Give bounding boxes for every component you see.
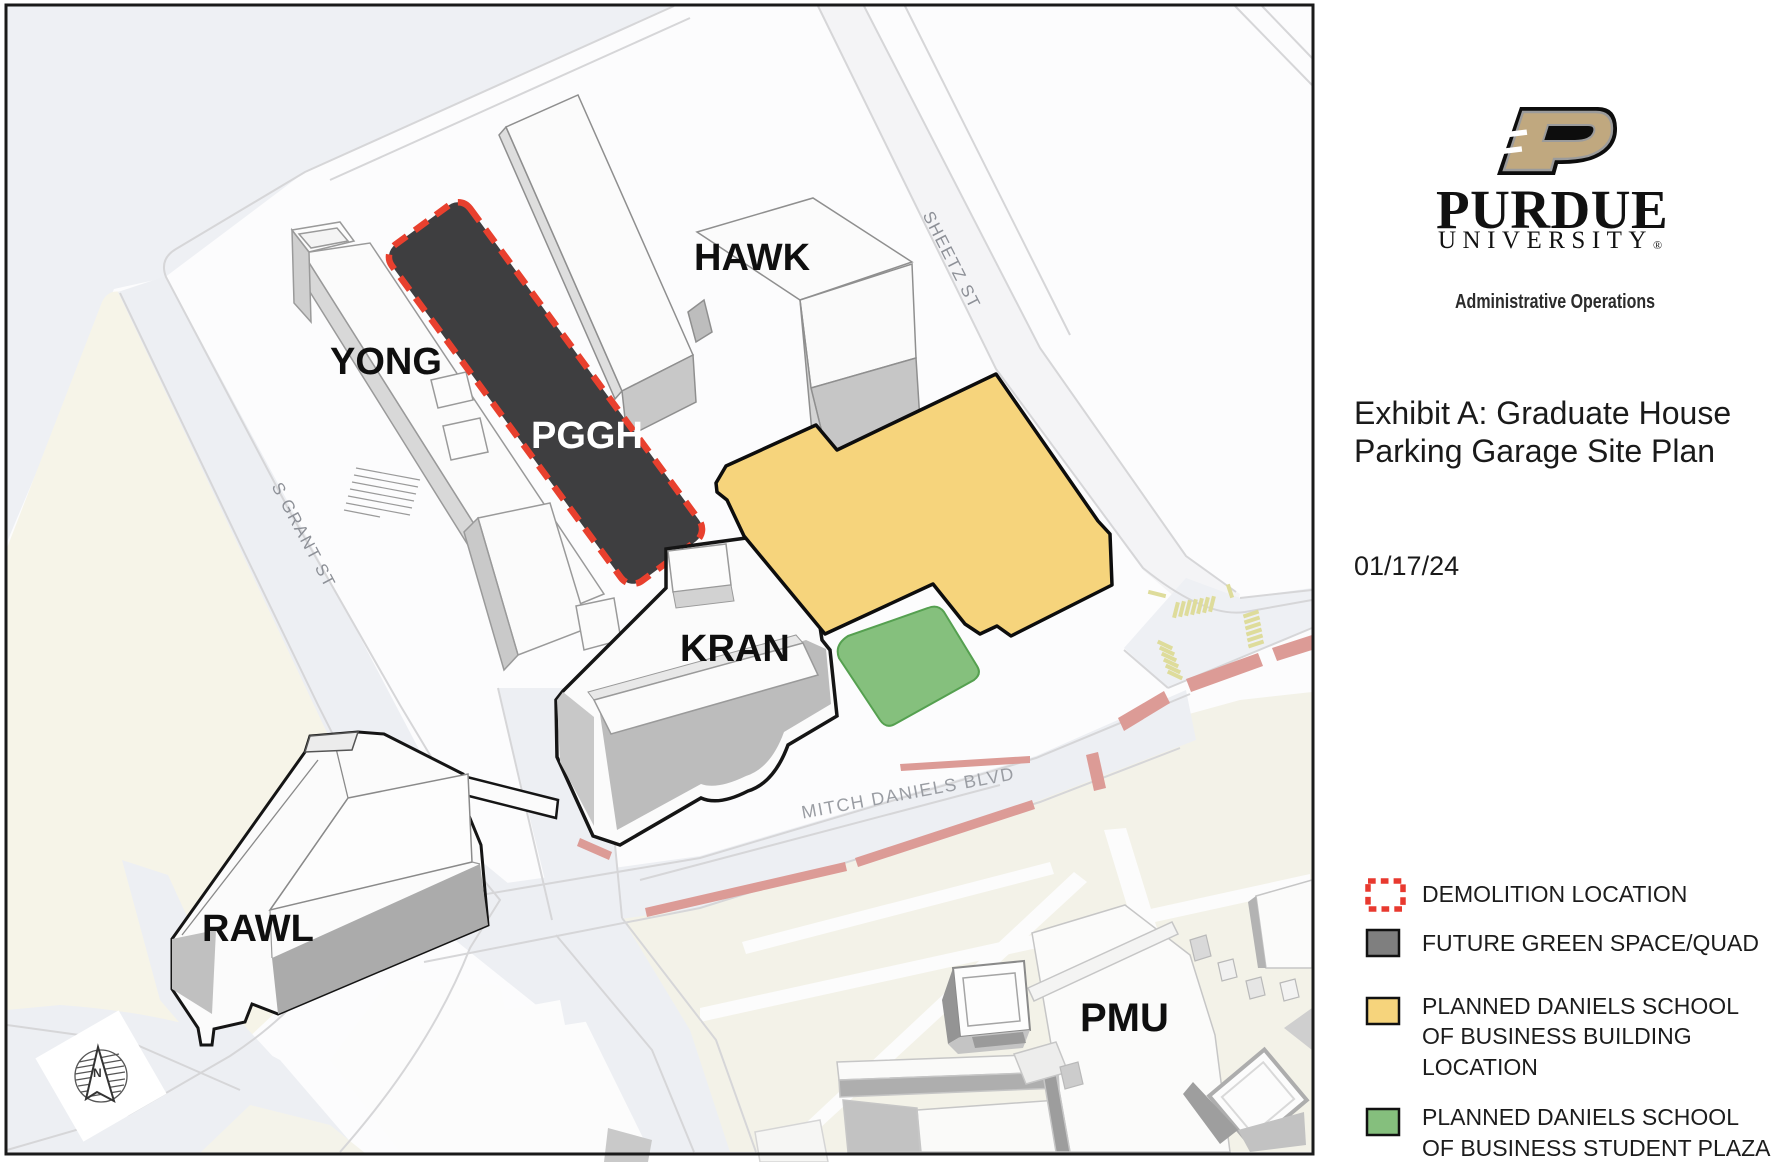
svg-text:DEMOLITION LOCATION: DEMOLITION LOCATION [1422, 881, 1687, 907]
svg-text:FUTURE GREEN SPACE/QUAD: FUTURE GREEN SPACE/QUAD [1422, 930, 1759, 956]
svg-text:PLANNED DANIELS SCHOOL: PLANNED DANIELS SCHOOL [1422, 993, 1739, 1019]
svg-text:PLANNED DANIELS SCHOOL: PLANNED DANIELS SCHOOL [1422, 1104, 1739, 1130]
svg-text:RAWL: RAWL [202, 908, 314, 950]
svg-text:LOCATION: LOCATION [1422, 1054, 1538, 1080]
svg-text:YONG: YONG [330, 341, 442, 383]
svg-text:N: N [93, 1066, 102, 1080]
svg-text:OF BUSINESS STUDENT PLAZA: OF BUSINESS STUDENT PLAZA [1422, 1135, 1771, 1161]
svg-text:OF BUSINESS BUILDING: OF BUSINESS BUILDING [1422, 1023, 1692, 1049]
svg-text:PGGH: PGGH [531, 415, 643, 457]
svg-text:HAWK: HAWK [694, 237, 811, 279]
svg-text:KRAN: KRAN [680, 628, 790, 670]
svg-text:PMU: PMU [1080, 996, 1169, 1040]
